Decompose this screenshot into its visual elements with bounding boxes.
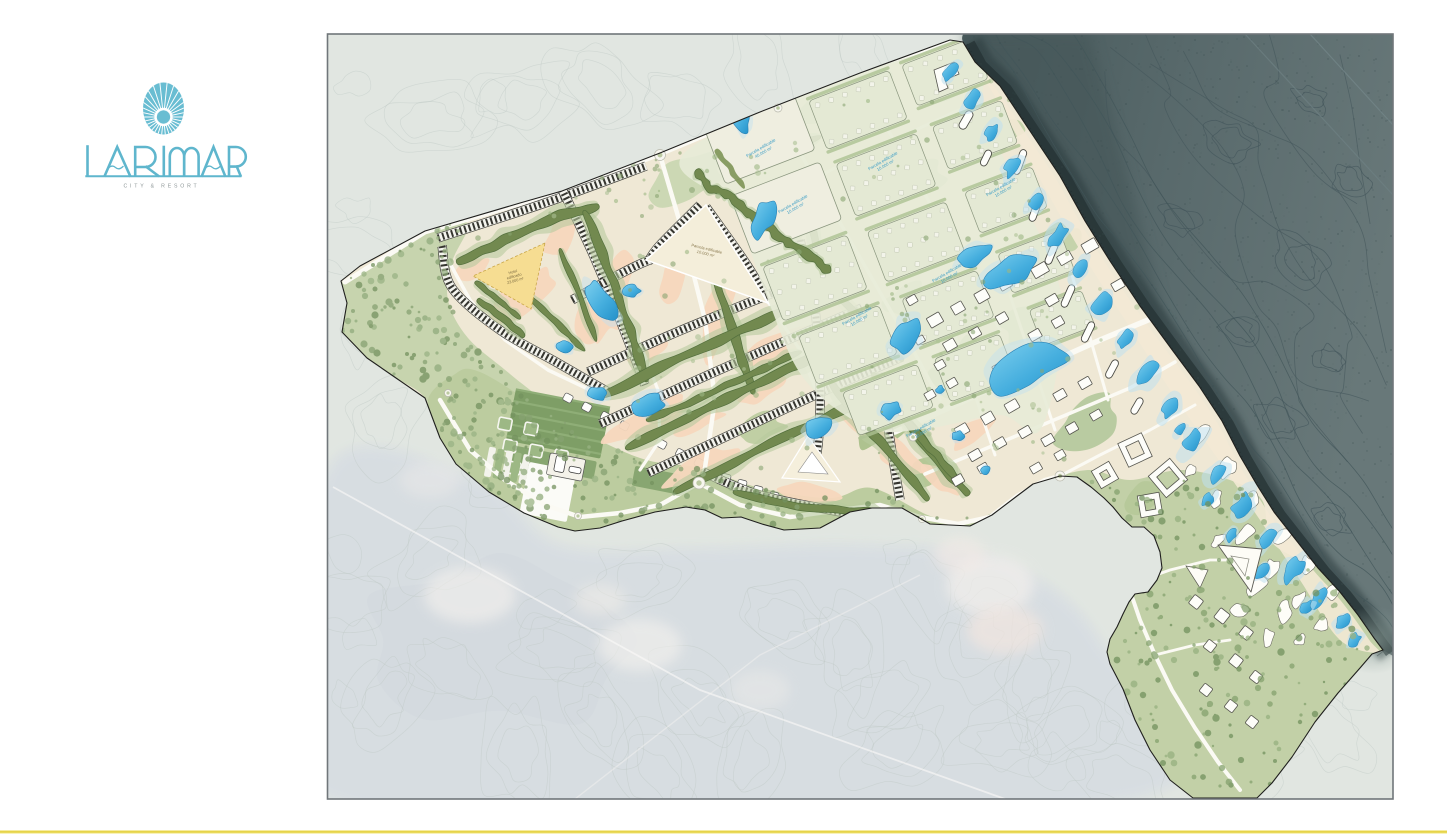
svg-text:CITY & RESORT: CITY & RESORT <box>124 184 200 190</box>
